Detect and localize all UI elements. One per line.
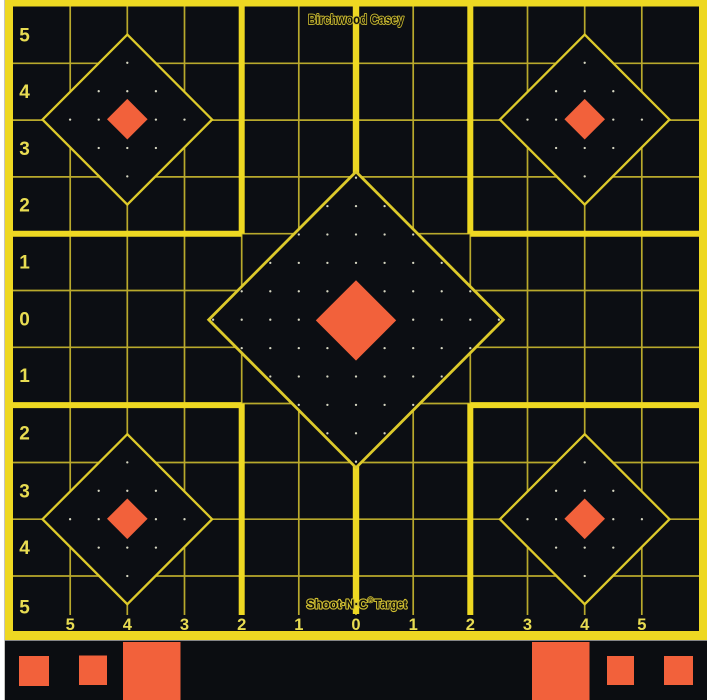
svg-text:2: 2 xyxy=(237,616,246,634)
svg-text:0: 0 xyxy=(351,616,360,634)
svg-text:0: 0 xyxy=(19,309,30,330)
svg-text:4: 4 xyxy=(580,616,590,634)
svg-text:4: 4 xyxy=(123,616,133,634)
svg-text:3: 3 xyxy=(523,616,532,634)
svg-text:®: ® xyxy=(368,596,374,605)
svg-text:5: 5 xyxy=(637,616,646,634)
svg-text:3: 3 xyxy=(19,139,30,160)
svg-text:4: 4 xyxy=(19,82,30,103)
svg-text:Shoot·N·C: Shoot·N·C xyxy=(307,597,369,612)
svg-text:5: 5 xyxy=(19,25,30,46)
svg-text:1: 1 xyxy=(19,253,30,274)
svg-text:3: 3 xyxy=(180,616,189,634)
svg-text:Target: Target xyxy=(375,597,408,612)
svg-text:5: 5 xyxy=(19,598,30,619)
svg-text:3: 3 xyxy=(19,481,30,502)
svg-text:5: 5 xyxy=(66,616,75,634)
svg-text:1: 1 xyxy=(294,616,303,634)
svg-text:2: 2 xyxy=(19,196,30,217)
svg-text:2: 2 xyxy=(19,423,30,444)
svg-text:2: 2 xyxy=(466,616,475,634)
svg-text:Birchwood Casey: Birchwood Casey xyxy=(308,12,404,27)
svg-text:1: 1 xyxy=(409,616,418,634)
svg-text:1: 1 xyxy=(19,366,30,387)
svg-text:4: 4 xyxy=(19,538,30,559)
